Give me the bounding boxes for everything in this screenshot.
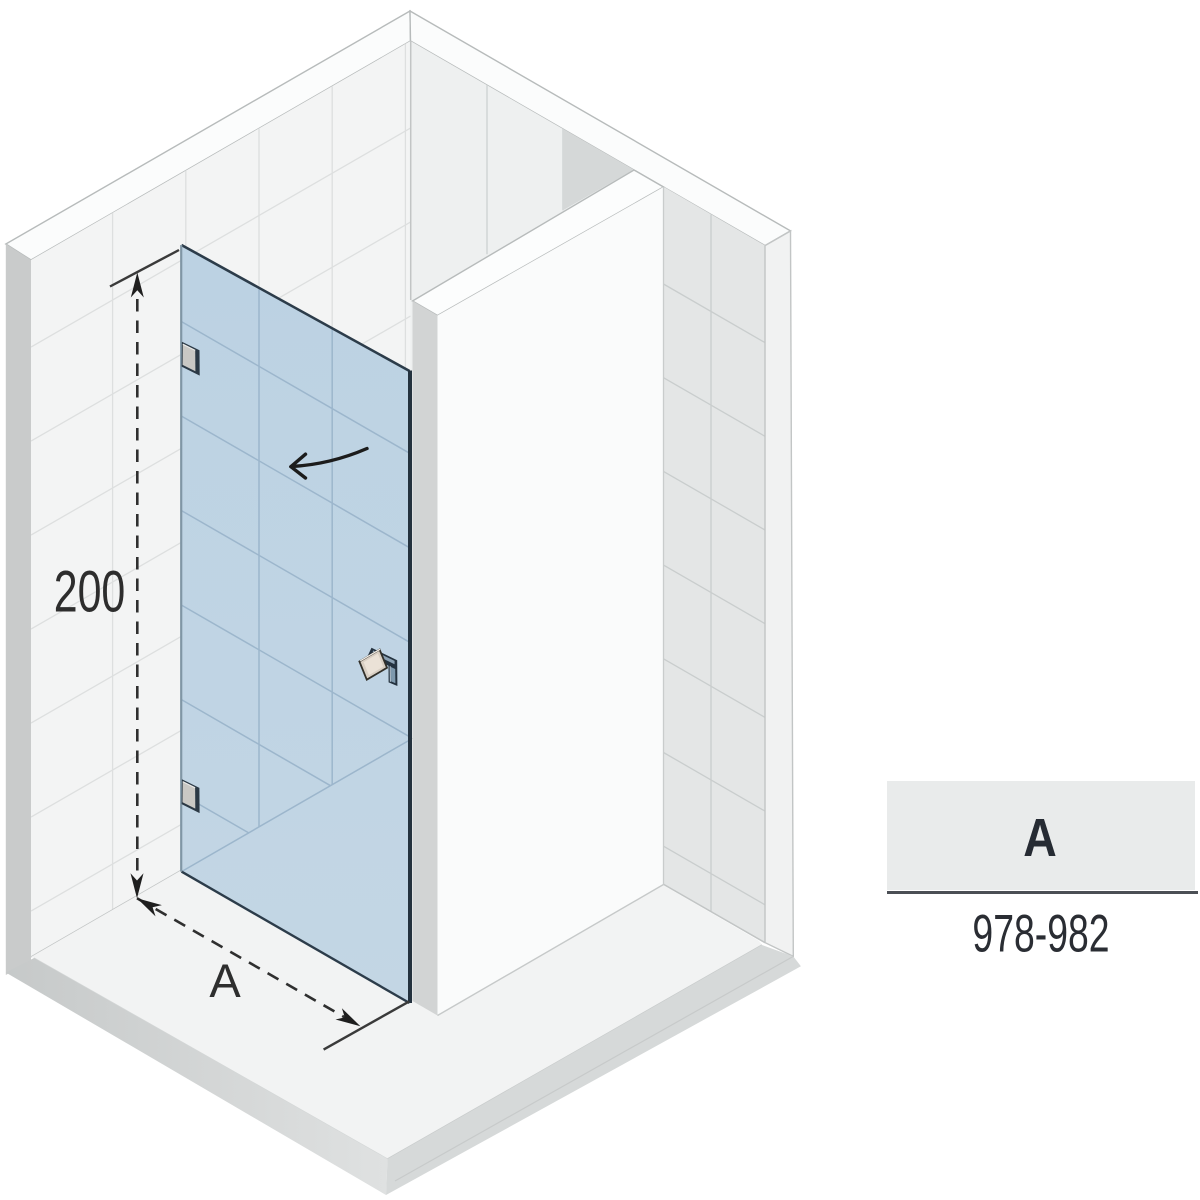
svg-text:A: A — [1023, 807, 1057, 868]
svg-text:200: 200 — [54, 559, 126, 624]
svg-text:978-982: 978-982 — [972, 904, 1109, 963]
svg-text:A: A — [209, 954, 241, 1007]
